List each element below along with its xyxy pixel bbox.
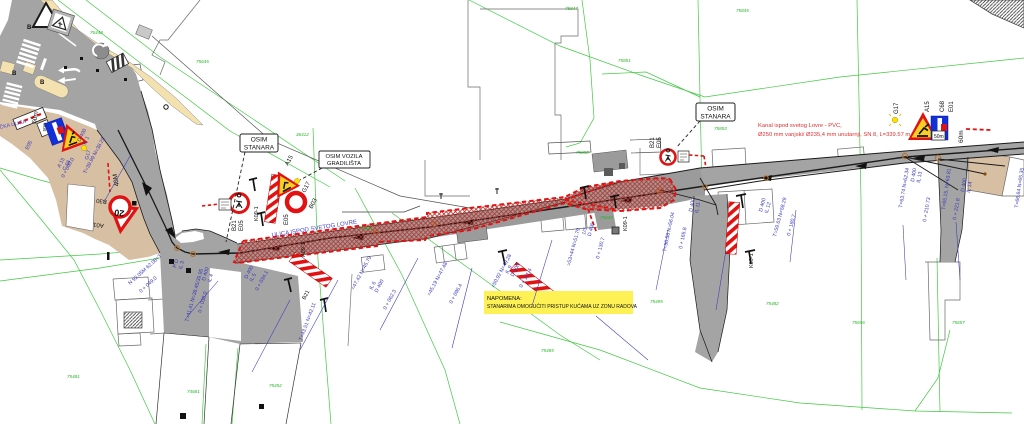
svg-text:K09-1: K09-1: [623, 216, 629, 231]
svg-text:OSIM VOZILA: OSIM VOZILA: [325, 154, 362, 160]
svg-text:75847: 75847: [565, 6, 578, 11]
svg-text:STANARA: STANARA: [244, 145, 275, 152]
svg-text:36412: 36412: [296, 132, 309, 137]
svg-text:75656: 75656: [852, 320, 865, 325]
svg-text:E01: E01: [949, 101, 955, 112]
svg-text:K09-1: K09-1: [301, 242, 307, 257]
svg-text:76448: 76448: [90, 30, 103, 35]
svg-text:75482: 75482: [766, 301, 779, 306]
svg-text:74681: 74681: [187, 389, 200, 394]
svg-text:E05: E05: [239, 220, 245, 231]
svg-text:75853: 75853: [714, 126, 727, 131]
svg-text:B: B: [27, 25, 32, 31]
svg-text:Kanal ispod svetog Lovre - PVC: Kanal ispod svetog Lovre - PVC,: [758, 123, 842, 129]
svg-text:NAPOMENA:: NAPOMENA:: [487, 296, 522, 302]
svg-text:75851: 75851: [618, 58, 631, 63]
svg-text:E05: E05: [284, 214, 290, 225]
svg-text:OSIM: OSIM: [707, 106, 724, 113]
svg-text:75452: 75452: [269, 383, 282, 388]
svg-text:Ø250 mm vanjski/ Ø235,4 mm unu: Ø250 mm vanjski/ Ø235,4 mm unutarnji, SN…: [758, 132, 910, 138]
svg-text:60m: 60m: [958, 130, 965, 143]
svg-text:75495: 75495: [650, 299, 663, 304]
svg-text:E05: E05: [657, 137, 663, 148]
svg-text:K09-1: K09-1: [254, 206, 260, 221]
svg-text:B21: B21: [232, 220, 238, 231]
svg-text:75485: 75485: [541, 348, 554, 353]
svg-text:B21: B21: [650, 137, 656, 148]
svg-text:G17: G17: [894, 102, 900, 114]
svg-text:75850: 75850: [576, 150, 589, 155]
svg-text:75657: 75657: [952, 320, 965, 325]
svg-text:20: 20: [114, 207, 125, 218]
svg-text:A15: A15: [925, 101, 931, 112]
svg-text:75845: 75845: [736, 8, 749, 13]
svg-text:STANARIMA OMOGUĆITI PRISTUP KU: STANARIMA OMOGUĆITI PRISTUP KUĆAMA UZ ZO…: [487, 303, 638, 310]
svg-text:GRADILIŠTA: GRADILIŠTA: [327, 160, 361, 167]
svg-text:B: B: [12, 71, 17, 77]
svg-text:B: B: [40, 80, 45, 86]
svg-text:75645: 75645: [360, 226, 373, 231]
svg-text:C68: C68: [940, 100, 946, 112]
svg-text:STANARA: STANARA: [700, 114, 731, 121]
svg-text:75481: 75481: [67, 374, 80, 379]
svg-text:75645: 75645: [196, 59, 209, 64]
svg-text:50m: 50m: [934, 134, 944, 140]
svg-text:K09-1: K09-1: [749, 253, 755, 268]
svg-text:OSIM: OSIM: [251, 137, 268, 144]
svg-text:75846: 75846: [600, 215, 613, 220]
